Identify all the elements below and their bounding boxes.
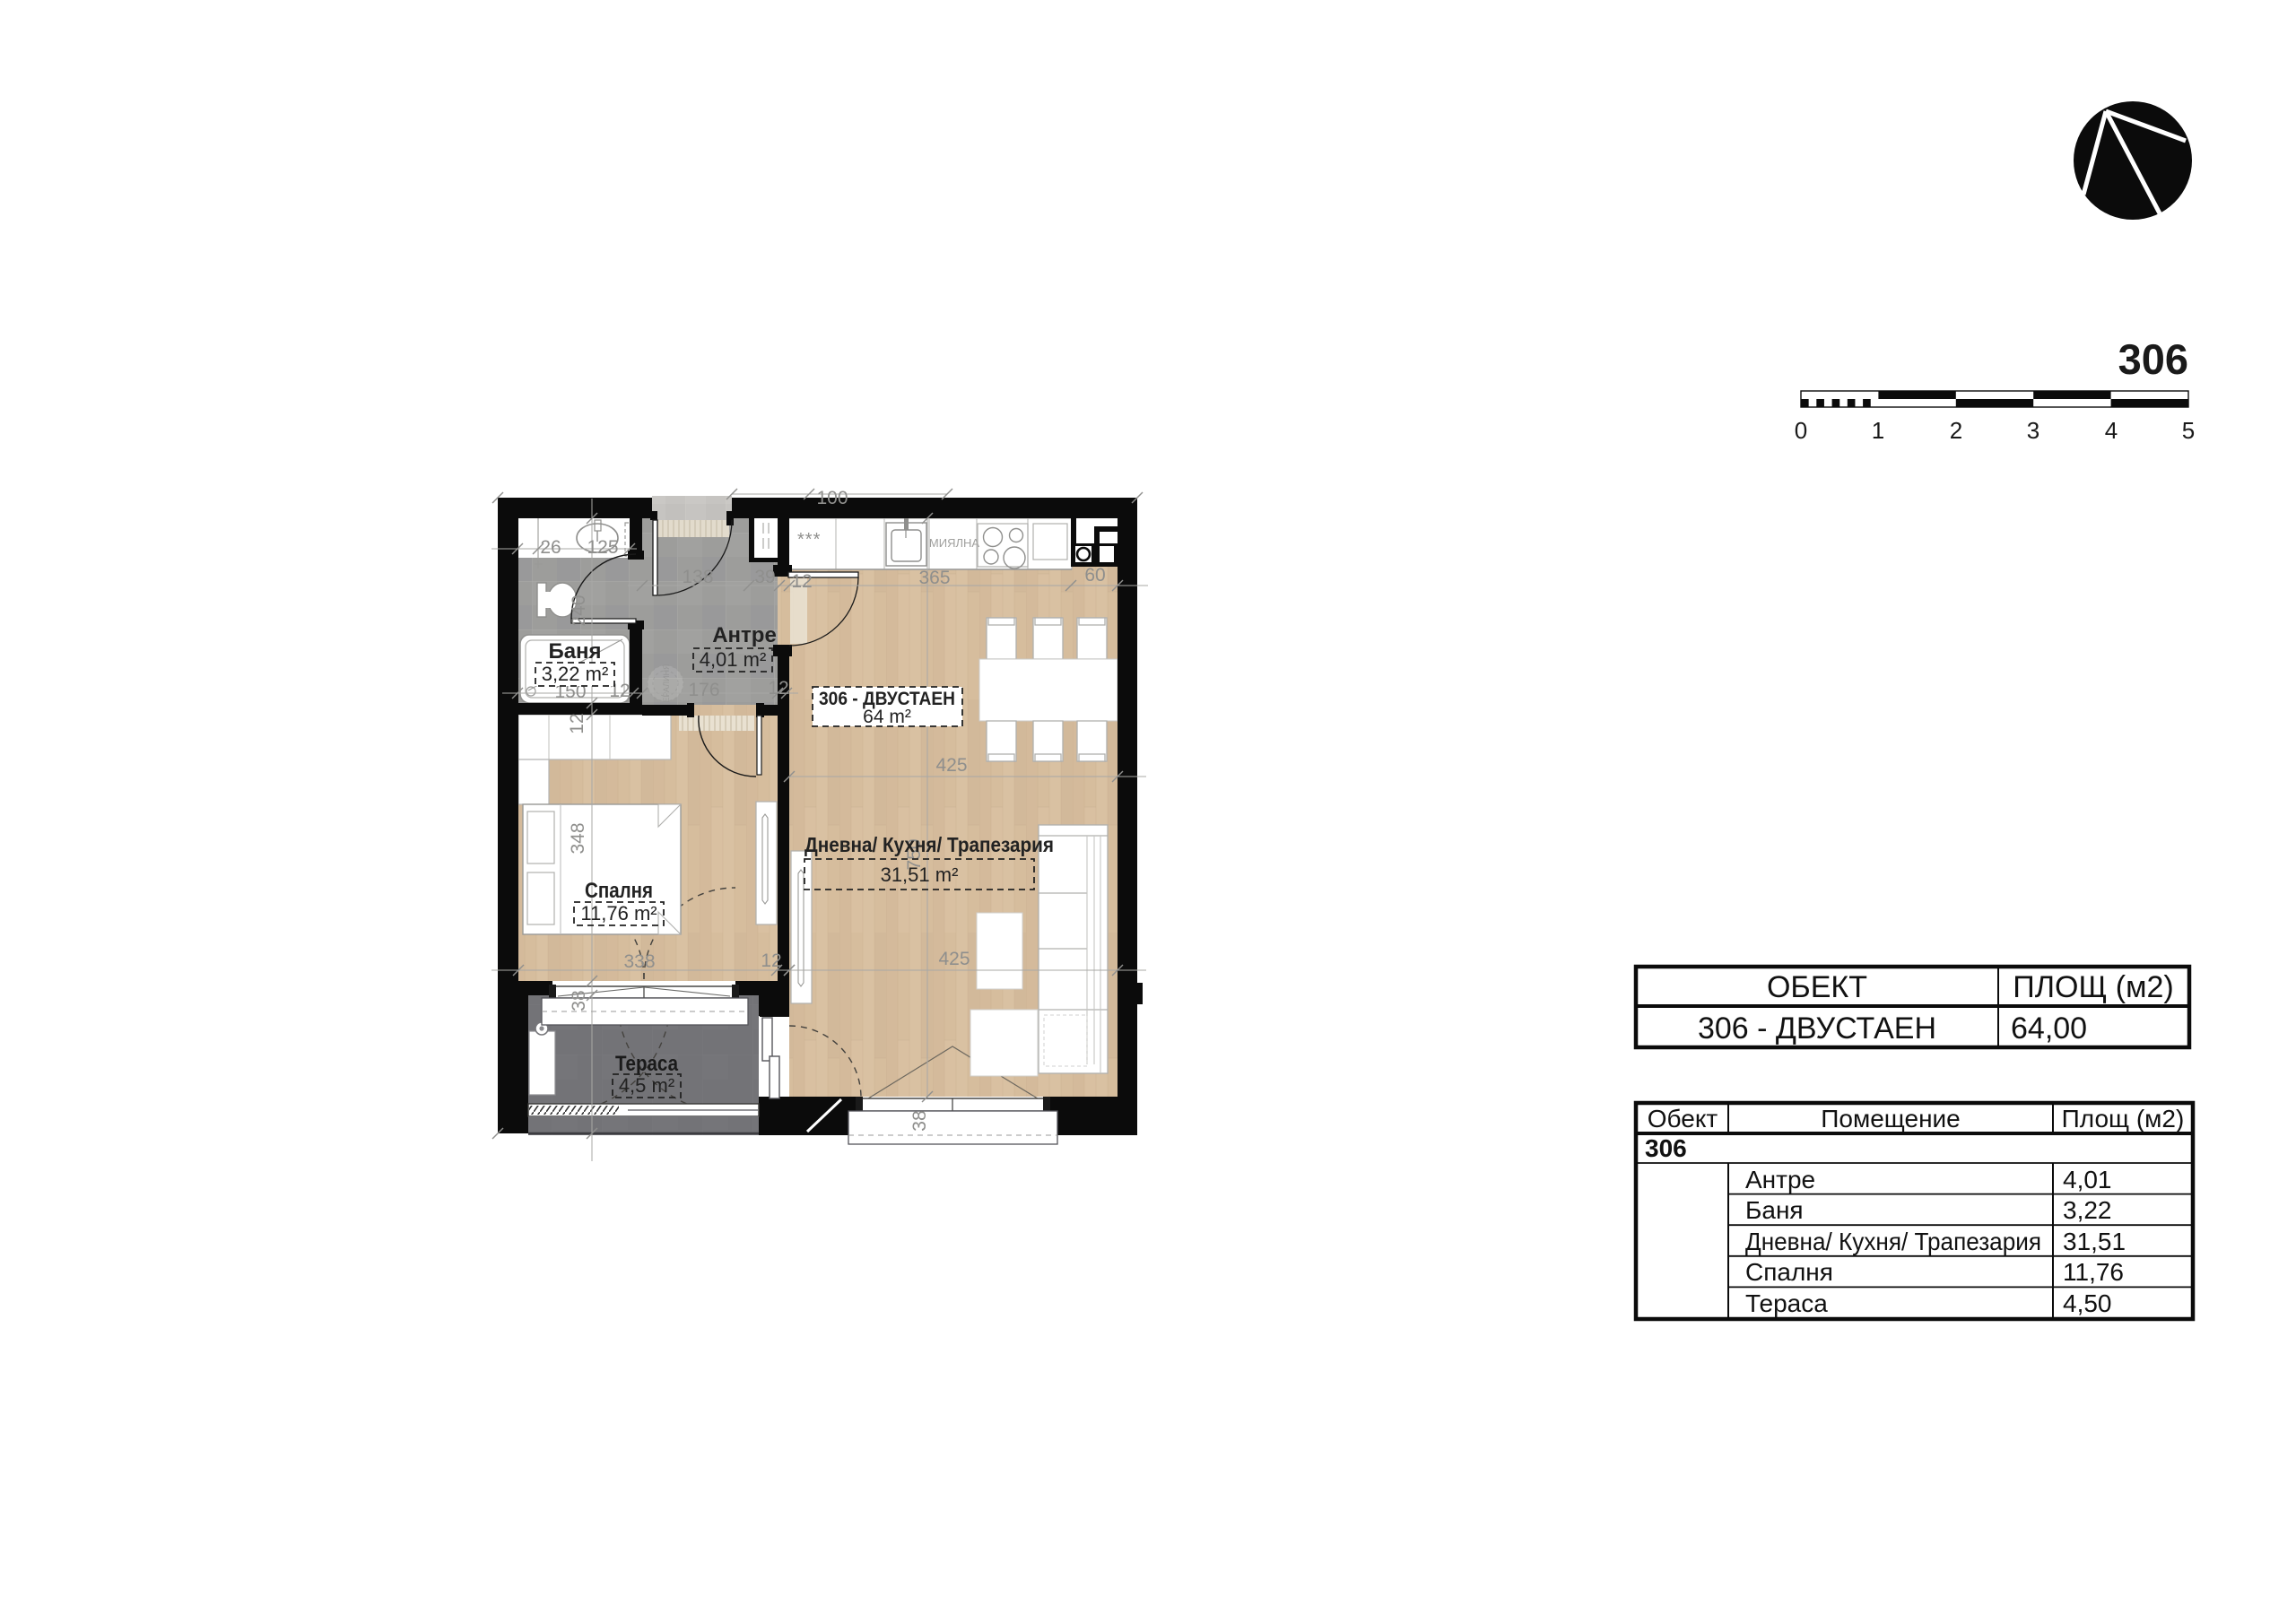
svg-text:Спалня: Спалня	[585, 879, 653, 903]
svg-text:425: 425	[938, 949, 970, 969]
svg-text:4,01 m²: 4,01 m²	[700, 648, 767, 671]
svg-text:Тераса: Тераса	[615, 1052, 679, 1076]
svg-text:38: 38	[909, 1110, 930, 1131]
svg-text:5: 5	[2182, 417, 2195, 444]
svg-text:4: 4	[2105, 417, 2118, 444]
svg-text:3,22: 3,22	[2063, 1196, 2112, 1224]
svg-text:Площ (м2): Площ (м2)	[2062, 1105, 2185, 1133]
svg-text:Тераса: Тераса	[1745, 1289, 1828, 1317]
svg-text:12: 12	[567, 713, 587, 733]
svg-text:3: 3	[2027, 417, 2039, 444]
svg-text:365: 365	[918, 568, 950, 588]
svg-text:Дневна/ Кухня/ Трапезария: Дневна/ Кухня/ Трапезария	[804, 833, 1054, 856]
svg-text:138: 138	[682, 567, 713, 587]
svg-text:Баня: Баня	[548, 639, 601, 664]
svg-text:3,22 m²: 3,22 m²	[542, 663, 609, 685]
svg-text:***: ***	[797, 530, 821, 550]
svg-text:125: 125	[587, 537, 618, 558]
svg-text:60: 60	[1084, 565, 1105, 586]
svg-text:11,76: 11,76	[2063, 1258, 2124, 1286]
svg-text:11,76 m²: 11,76 m²	[580, 902, 657, 924]
svg-text:100: 100	[816, 488, 848, 508]
svg-text:425: 425	[935, 755, 967, 776]
svg-text:4,5 m²: 4,5 m²	[619, 1074, 674, 1097]
svg-text:Антре: Антре	[1745, 1166, 1815, 1193]
svg-text:64 m²: 64 m²	[863, 707, 911, 727]
svg-text:Обект: Обект	[1648, 1105, 1718, 1133]
svg-text:306: 306	[1645, 1134, 1687, 1162]
svg-text:ОБЕКТ: ОБЕКТ	[1767, 970, 1867, 1004]
svg-text:348: 348	[568, 822, 588, 854]
svg-text:39: 39	[754, 567, 775, 587]
svg-text:Дневна/ Кухня/ Трапезария: Дневна/ Кухня/ Трапезария	[1745, 1228, 2041, 1255]
svg-text:64,00: 64,00	[2011, 1011, 2087, 1046]
svg-text:МИЯЛНА: МИЯЛНА	[929, 536, 979, 550]
svg-text:2: 2	[1950, 417, 1962, 444]
svg-text:1: 1	[1872, 417, 1884, 444]
svg-text:176: 176	[688, 680, 719, 700]
svg-text:306: 306	[2118, 335, 2188, 383]
svg-text:38: 38	[569, 990, 589, 1011]
svg-text:306 - ДВУСТАЕН: 306 - ДВУСТАЕН	[1698, 1011, 1936, 1046]
svg-text:4,01: 4,01	[2063, 1166, 2112, 1193]
svg-text:338: 338	[623, 951, 655, 972]
svg-text:12: 12	[761, 950, 781, 971]
svg-text:Спалня: Спалня	[1745, 1258, 1833, 1286]
svg-text:31,51: 31,51	[2063, 1228, 2126, 1255]
svg-text:240: 240	[569, 595, 589, 626]
svg-text:Баня: Баня	[1745, 1196, 1804, 1224]
svg-text:31,51 m²: 31,51 m²	[881, 864, 959, 886]
svg-text:0: 0	[1795, 417, 1807, 444]
svg-text:26: 26	[540, 537, 561, 558]
svg-text:ЕРАЛИНЯ: ЕРАЛИНЯ	[662, 664, 671, 703]
svg-text:12: 12	[791, 571, 812, 592]
svg-text:ПЛОЩ (м2): ПЛОЩ (м2)	[2013, 970, 2173, 1004]
svg-text:4,50: 4,50	[2063, 1289, 2112, 1317]
svg-text:12: 12	[768, 678, 788, 699]
svg-text:Антре: Антре	[712, 623, 777, 647]
svg-text:Помещение: Помещение	[1821, 1105, 1961, 1133]
